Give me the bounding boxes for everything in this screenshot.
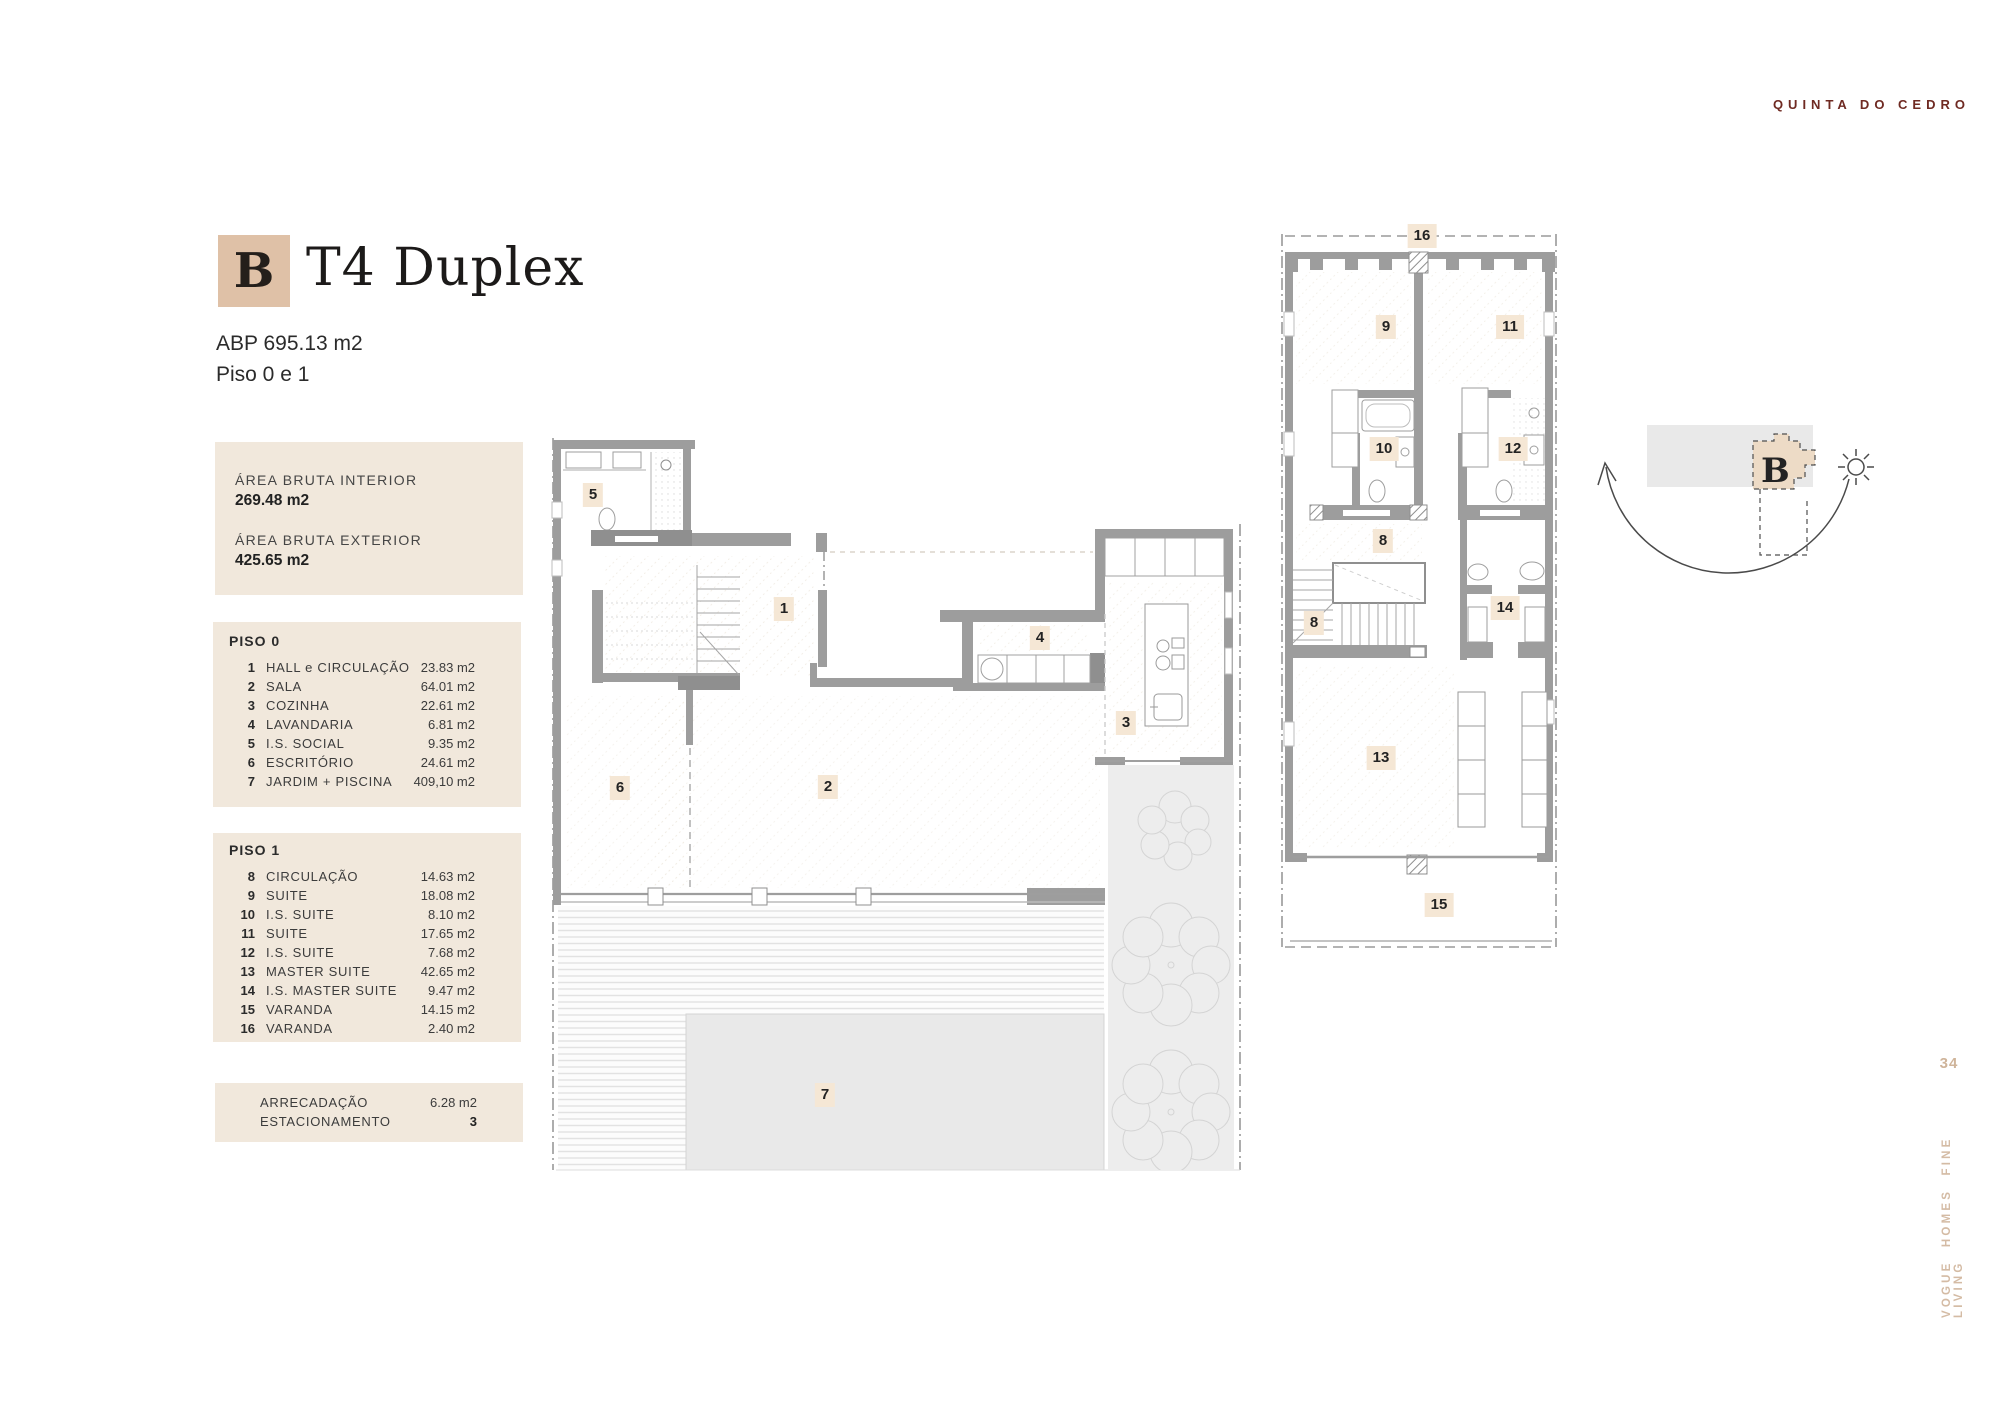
room-number-badge: 6 xyxy=(610,776,630,800)
piso0-plan xyxy=(552,438,1240,1173)
room-number-badge: 11 xyxy=(1496,315,1524,339)
brochure-page: QUINTA DO CEDRO B T4 Duplex ABP 695.13 m… xyxy=(0,0,2000,1414)
room-number-badge: 2 xyxy=(818,775,838,799)
room-number-badge: 16 xyxy=(1408,224,1437,248)
site-orientation-map: B xyxy=(1598,425,1874,573)
room-number-badge: 8 xyxy=(1304,611,1324,635)
room-number-badge: 13 xyxy=(1367,746,1396,770)
kitchen-island-icon xyxy=(1145,604,1188,726)
room-number-badge: 3 xyxy=(1116,711,1136,735)
minimap-logo-letter: B xyxy=(1761,451,1790,491)
room-number-badge: 10 xyxy=(1370,437,1399,461)
sun-icon xyxy=(1838,449,1874,485)
bathtub-icon xyxy=(1362,400,1414,431)
room-number-badge: 9 xyxy=(1376,315,1396,339)
piso1-plan xyxy=(1282,234,1556,947)
toilet-icon xyxy=(1520,562,1544,580)
tree-icon xyxy=(1112,903,1230,1026)
room-number-badge: 12 xyxy=(1499,437,1528,461)
room-number-badge: 8 xyxy=(1373,529,1393,553)
shower-icon xyxy=(661,460,671,470)
room-number-badge: 4 xyxy=(1030,626,1050,650)
room-number-badge: 14 xyxy=(1491,596,1520,620)
room-number-badge: 1 xyxy=(774,597,794,621)
toilet-icon xyxy=(599,508,615,530)
page-number: 34 xyxy=(1934,1055,1964,1072)
toilet-icon xyxy=(1369,480,1385,502)
room-number-badge: 15 xyxy=(1425,893,1454,917)
toilet-icon xyxy=(1496,480,1512,502)
bidet-icon xyxy=(1468,564,1488,580)
brand-side-text: VOGUE HOMES FINE LIVING xyxy=(1941,1076,1965,1318)
room-number-badge: 5 xyxy=(583,483,603,507)
floor-plan-drawing: B xyxy=(0,0,2000,1414)
room-number-badge: 7 xyxy=(815,1083,835,1107)
tree-icon xyxy=(1112,1050,1230,1173)
